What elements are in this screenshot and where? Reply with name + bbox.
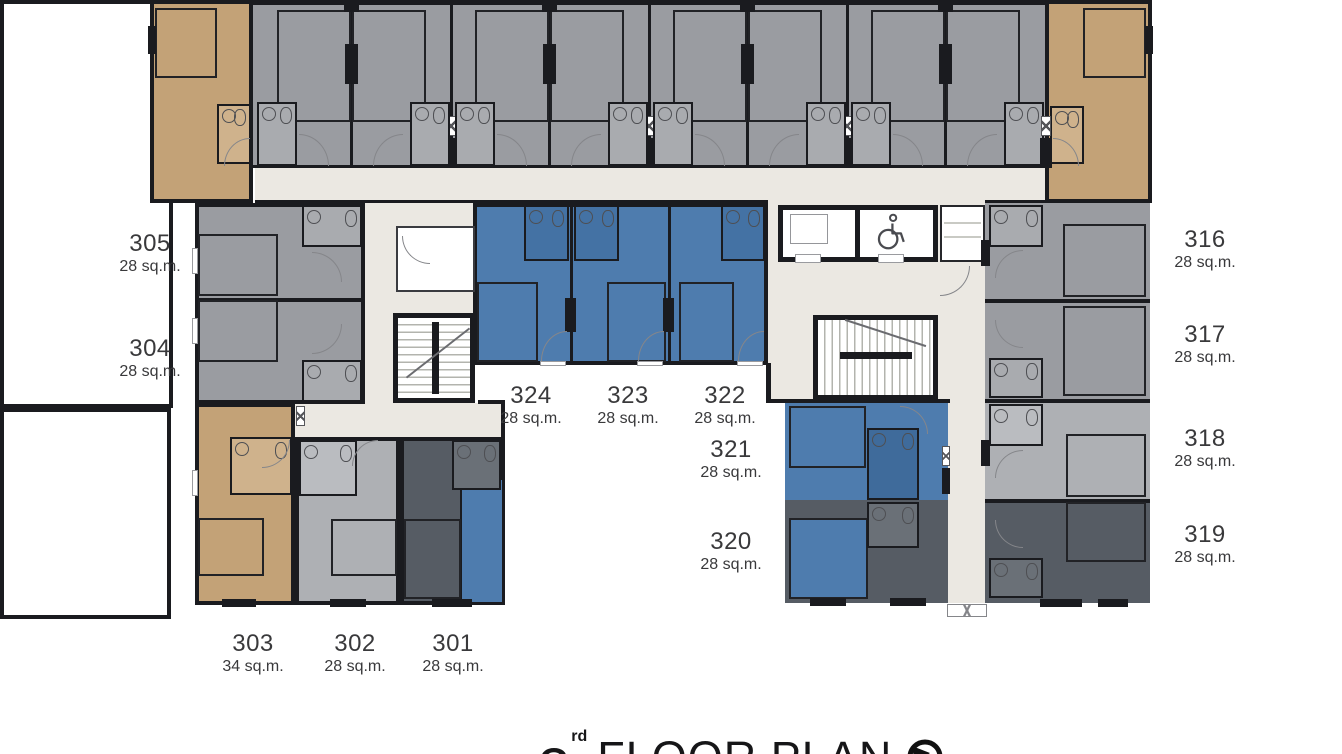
wall-segment bbox=[344, 0, 359, 12]
bathroom bbox=[299, 440, 357, 496]
unit-label-305: 305 28 sq.m. bbox=[119, 232, 180, 276]
unit-area: 28 sq.m. bbox=[1174, 548, 1235, 567]
unit-area: 28 sq.m. bbox=[324, 657, 385, 676]
door-jamb-mark bbox=[1041, 116, 1051, 136]
unit-number: 317 bbox=[1174, 323, 1235, 347]
bathroom bbox=[1004, 102, 1044, 166]
wall-segment bbox=[740, 0, 755, 12]
window-mark bbox=[192, 248, 198, 274]
unit-area: 28 sq.m. bbox=[700, 463, 761, 482]
wall-segment bbox=[938, 0, 953, 12]
room-outline bbox=[198, 518, 264, 576]
room-outline bbox=[198, 234, 278, 296]
bathroom bbox=[806, 102, 846, 166]
floor-number: 3 bbox=[538, 741, 570, 754]
unit-number: 320 bbox=[700, 530, 761, 554]
wall-segment bbox=[890, 598, 926, 606]
unit-label-321: 321 28 sq.m. bbox=[700, 438, 761, 482]
window-mark bbox=[540, 361, 566, 366]
unit-area: 28 sq.m. bbox=[119, 257, 180, 276]
utility-room bbox=[940, 205, 985, 262]
bathroom bbox=[302, 205, 362, 247]
wall-segment bbox=[981, 240, 990, 266]
unit-number: 323 bbox=[597, 384, 658, 408]
wall-segment bbox=[981, 440, 990, 466]
wall-segment bbox=[570, 203, 573, 365]
unit-number: 302 bbox=[324, 632, 385, 656]
unit-area: 28 sq.m. bbox=[500, 409, 561, 428]
wall-segment bbox=[1040, 599, 1082, 607]
unit-number: 305 bbox=[119, 232, 180, 256]
bathroom bbox=[452, 440, 501, 490]
unit-number: 301 bbox=[422, 632, 483, 656]
bathroom bbox=[653, 102, 693, 166]
unit-label-317: 317 28 sq.m. bbox=[1174, 323, 1235, 367]
unit-area: 28 sq.m. bbox=[1174, 253, 1235, 272]
window-mark bbox=[737, 361, 763, 366]
room-outline bbox=[789, 406, 866, 468]
unit-area: 28 sq.m. bbox=[1174, 452, 1235, 471]
wall-segment bbox=[855, 205, 860, 262]
wall-segment bbox=[766, 363, 771, 403]
bathroom bbox=[302, 360, 362, 402]
wall-segment bbox=[222, 599, 256, 607]
bathroom bbox=[989, 358, 1043, 398]
wall-segment bbox=[668, 203, 671, 365]
unit-area: 28 sq.m. bbox=[700, 555, 761, 574]
room-outline bbox=[1066, 434, 1146, 497]
bathroom bbox=[410, 102, 450, 166]
bathroom bbox=[257, 102, 297, 166]
wall-segment bbox=[985, 299, 1150, 303]
wall-segment bbox=[1098, 599, 1128, 607]
elevator-car-outline bbox=[790, 214, 828, 244]
wall-segment bbox=[432, 599, 472, 607]
unit-number: 318 bbox=[1174, 427, 1235, 451]
unit-label-319: 319 28 sq.m. bbox=[1174, 523, 1235, 567]
room-outline bbox=[1063, 224, 1146, 297]
unit-area: 28 sq.m. bbox=[119, 362, 180, 381]
bathroom bbox=[455, 102, 495, 166]
wall-segment bbox=[330, 599, 366, 607]
window-mark bbox=[637, 361, 663, 366]
unit-number: 319 bbox=[1174, 523, 1235, 547]
bathroom bbox=[867, 428, 919, 500]
room-outline bbox=[1066, 502, 1146, 562]
wall-segment bbox=[768, 399, 950, 403]
wall-segment bbox=[1040, 138, 1052, 168]
bathroom bbox=[851, 102, 891, 166]
unit-label-320: 320 28 sq.m. bbox=[700, 530, 761, 574]
bathroom bbox=[989, 558, 1043, 598]
unit-label-322: 322 28 sq.m. bbox=[694, 384, 755, 428]
unit-area: 28 sq.m. bbox=[597, 409, 658, 428]
shelf-line bbox=[944, 222, 981, 224]
wall-segment bbox=[345, 44, 358, 84]
unit-label-318: 318 28 sq.m. bbox=[1174, 427, 1235, 471]
wheelchair-accessible-icon bbox=[874, 212, 908, 252]
corridor-bottom-left bbox=[295, 403, 505, 437]
unit-number: 304 bbox=[119, 337, 180, 361]
window-mark bbox=[795, 254, 821, 263]
bathroom bbox=[867, 502, 919, 548]
wall-segment bbox=[939, 44, 952, 84]
wall-segment bbox=[565, 298, 576, 332]
wall-segment bbox=[985, 399, 1150, 403]
room-outline bbox=[679, 282, 734, 362]
bathroom bbox=[989, 404, 1043, 446]
unit-label-304: 304 28 sq.m. bbox=[119, 337, 180, 381]
unit-number: 322 bbox=[694, 384, 755, 408]
bathroom bbox=[574, 205, 619, 261]
window-mark bbox=[192, 470, 198, 496]
window-mark bbox=[878, 254, 904, 263]
room-outline bbox=[331, 519, 397, 576]
wall-segment bbox=[810, 598, 846, 606]
window-mark bbox=[192, 318, 198, 344]
wall-segment bbox=[840, 352, 912, 359]
exit-mark bbox=[947, 604, 987, 617]
unit-number: 321 bbox=[700, 438, 761, 462]
room-outline bbox=[155, 8, 217, 78]
unit-301-blue-room bbox=[460, 478, 502, 602]
floor-plan-title: 3 rd FLOOR PLAN bbox=[538, 727, 946, 754]
unit-number: 303 bbox=[222, 632, 283, 656]
floor-plan-text: FLOOR PLAN bbox=[597, 735, 892, 754]
unit-label-303: 303 34 sq.m. bbox=[222, 632, 283, 676]
unit-area: 28 sq.m. bbox=[694, 409, 755, 428]
wall-segment bbox=[1145, 26, 1153, 54]
unit-number: 324 bbox=[500, 384, 561, 408]
unit-label-323: 323 28 sq.m. bbox=[597, 384, 658, 428]
shelf-line bbox=[944, 236, 981, 238]
wall-segment bbox=[543, 44, 556, 84]
room-outline bbox=[1083, 8, 1146, 78]
room-outline bbox=[404, 519, 461, 599]
unit-number: 316 bbox=[1174, 228, 1235, 252]
floor-ordinal: rd bbox=[571, 728, 587, 754]
wall-segment bbox=[663, 298, 674, 332]
unit-area: 28 sq.m. bbox=[422, 657, 483, 676]
north-compass-icon bbox=[904, 736, 946, 754]
bathroom bbox=[608, 102, 648, 166]
bottom-middle-outline bbox=[0, 408, 171, 619]
corridor-right-vertical bbox=[948, 390, 985, 603]
unit-label-302: 302 28 sq.m. bbox=[324, 632, 385, 676]
door-jamb-mark bbox=[296, 406, 305, 426]
room-outline bbox=[1063, 306, 1146, 396]
wall-segment bbox=[942, 468, 950, 494]
room-outline bbox=[789, 518, 868, 599]
unit-label-324: 324 28 sq.m. bbox=[500, 384, 561, 428]
door-jamb-mark bbox=[942, 446, 950, 466]
unit-label-316: 316 28 sq.m. bbox=[1174, 228, 1235, 272]
bathroom bbox=[524, 205, 569, 261]
bathroom bbox=[989, 205, 1043, 247]
unit-label-301: 301 28 sq.m. bbox=[422, 632, 483, 676]
unit-area: 28 sq.m. bbox=[1174, 348, 1235, 367]
unit-area: 34 sq.m. bbox=[222, 657, 283, 676]
floor-plan-canvas: 305 28 sq.m. 304 28 sq.m. 316 28 sq.m. 3… bbox=[0, 0, 1342, 754]
wall-segment bbox=[741, 44, 754, 84]
room-outline bbox=[198, 300, 278, 362]
room-outline bbox=[477, 282, 538, 362]
wall-segment bbox=[148, 26, 156, 54]
corridor-top bbox=[255, 168, 1045, 203]
bathroom bbox=[721, 205, 765, 261]
wall-segment bbox=[542, 0, 557, 12]
